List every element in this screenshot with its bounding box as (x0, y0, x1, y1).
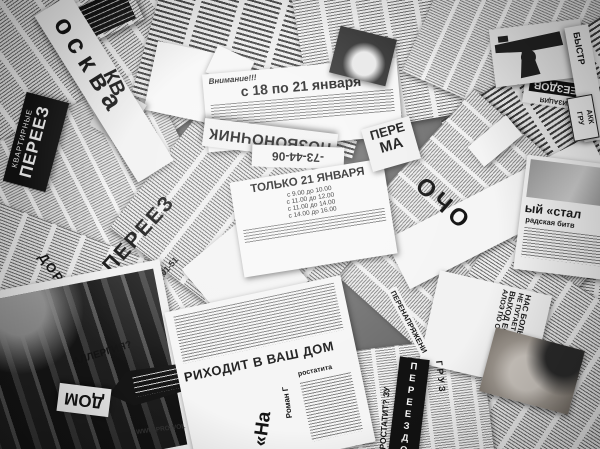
headline-na-fragment: «На (250, 410, 277, 448)
ad-bystr: БЫСТР (564, 30, 593, 67)
banner-pereezdov-vertical: ПЕРЕЕЗДОВ (396, 361, 420, 449)
article-photo (526, 159, 600, 207)
newspaper-collage-photo: осква КВ Внимание!!! с 18 по 21 января П… (0, 0, 600, 449)
fine-print-lines (521, 227, 600, 267)
byline-roman: Роман Г (281, 386, 294, 419)
headline-dom: ДОМ (63, 384, 106, 417)
article-scrap-stal: ый «стал радская битв (513, 155, 600, 281)
fine-print-lines (300, 372, 363, 442)
phone-number: -73-44-06 (272, 145, 325, 169)
